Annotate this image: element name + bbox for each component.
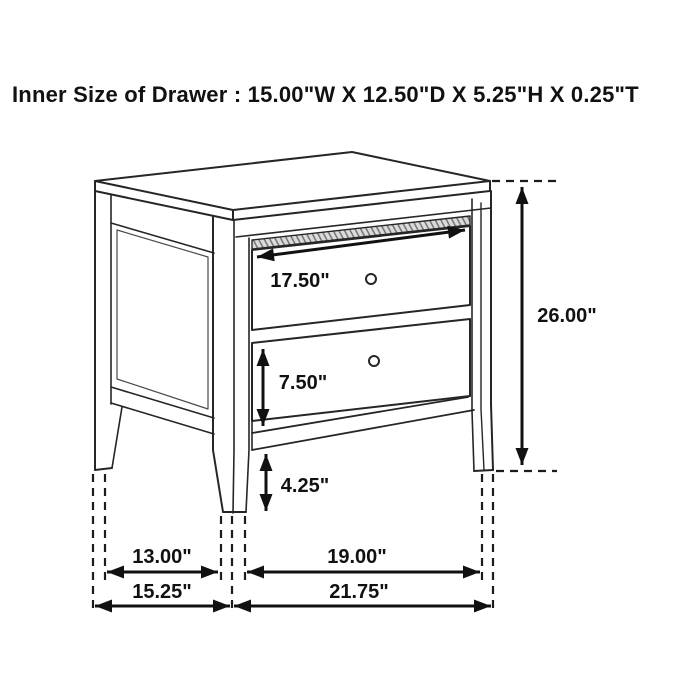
nightstand-line-art bbox=[95, 152, 493, 513]
front-left-leg bbox=[213, 216, 249, 513]
dimension-labels: 17.50" 26.00" 7.50" 4.25" 13.00" 19.00" … bbox=[132, 270, 597, 603]
back-left-leg bbox=[95, 407, 122, 470]
top-drawer-knob bbox=[366, 274, 376, 284]
bottom-front-rail bbox=[252, 397, 474, 450]
label-overall-depth: 15.25" bbox=[132, 581, 192, 603]
label-drawer-width: 17.50" bbox=[270, 270, 330, 292]
left-side-panel bbox=[95, 191, 214, 470]
bottom-drawer-knob bbox=[369, 356, 379, 366]
tabletop-surface bbox=[95, 152, 490, 210]
front-right-leg bbox=[472, 191, 493, 471]
label-front-leg-span: 19.00" bbox=[327, 546, 387, 568]
nightstand-diagram-svg: 17.50" 26.00" 7.50" 4.25" 13.00" 19.00" … bbox=[0, 0, 700, 700]
bottom-drawer bbox=[252, 319, 470, 421]
label-overall-height: 26.00" bbox=[537, 305, 597, 327]
label-floor-clearance: 4.25" bbox=[281, 475, 329, 497]
label-side-leg-span: 13.00" bbox=[132, 546, 192, 568]
dimension-diagram: Inner Size of Drawer : 15.00"W X 12.50"D… bbox=[0, 0, 700, 700]
label-overall-width: 21.75" bbox=[329, 581, 389, 603]
label-drawer-height: 7.50" bbox=[279, 372, 327, 394]
